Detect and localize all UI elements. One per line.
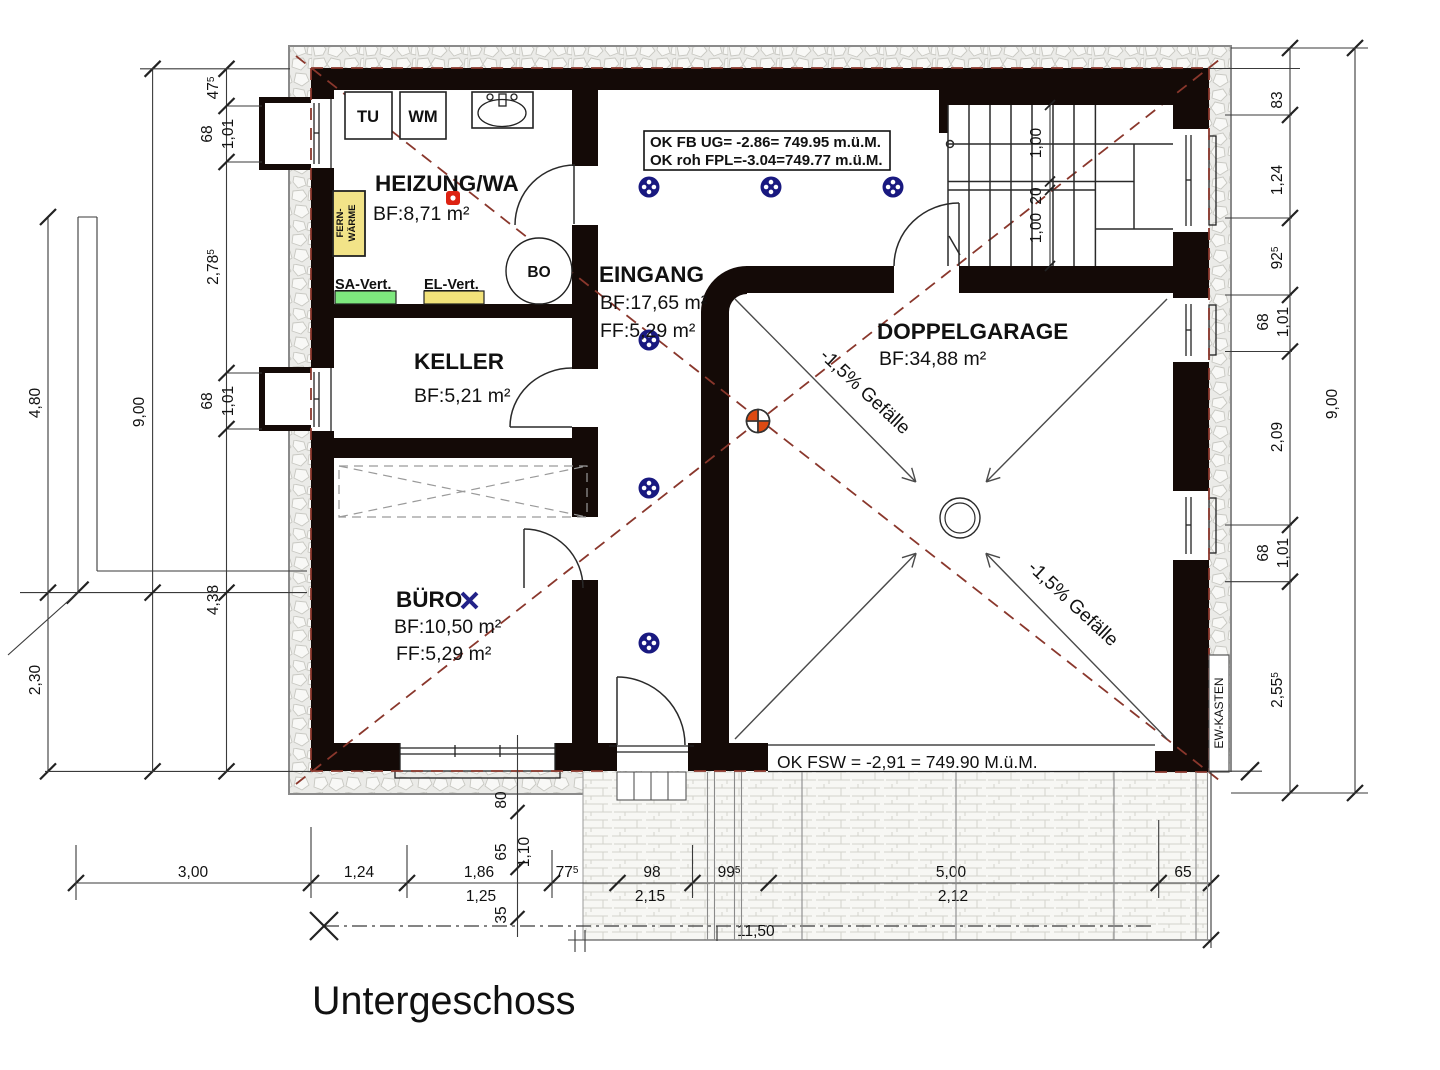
svg-text:1,00: 1,00 <box>1028 128 1045 159</box>
svg-text:1,25: 1,25 <box>466 888 496 905</box>
svg-text:BF:10,50 m²: BF:10,50 m² <box>394 616 502 638</box>
svg-text:1,01: 1,01 <box>1275 307 1292 337</box>
svg-text:FF:5,29 m²: FF:5,29 m² <box>396 643 492 665</box>
svg-text:2,30: 2,30 <box>27 665 44 696</box>
svg-text:5,00: 5,00 <box>936 864 967 881</box>
svg-text:BF:8,71 m²: BF:8,71 m² <box>373 203 470 225</box>
svg-text:35: 35 <box>493 906 510 923</box>
svg-text:68: 68 <box>199 125 216 142</box>
svg-text:68: 68 <box>199 392 216 409</box>
svg-text:9,00: 9,00 <box>1324 389 1341 420</box>
svg-text:EINGANG: EINGANG <box>599 262 704 287</box>
svg-text:OK FB UG= -2.86= 749.95 m.ü.: OK FB UG= -2.86= 749.95 m.ü.M. <box>650 134 881 151</box>
svg-text:WM: WM <box>408 108 437 126</box>
svg-text:BO: BO <box>527 264 550 281</box>
svg-text:1,24: 1,24 <box>344 864 375 881</box>
svg-text:65: 65 <box>493 843 510 860</box>
svg-text:98: 98 <box>643 864 660 881</box>
svg-text:KELLER: KELLER <box>414 349 504 374</box>
svg-text:20: 20 <box>1028 187 1045 205</box>
svg-text:1,01: 1,01 <box>220 119 237 149</box>
svg-text:80: 80 <box>493 791 510 809</box>
svg-text:WÄRME: WÄRME <box>347 205 358 242</box>
svg-text:65: 65 <box>1174 864 1191 881</box>
svg-text:2,12: 2,12 <box>938 888 968 905</box>
svg-text:3,00: 3,00 <box>178 864 209 881</box>
svg-text:BÜRO: BÜRO <box>396 587 462 612</box>
svg-text:83: 83 <box>1269 91 1286 108</box>
svg-text:EW-KASTEN: EW-KASTEN <box>1212 677 1226 748</box>
svg-text:1,24: 1,24 <box>1269 165 1286 196</box>
svg-text:DOPPELGARAGE: DOPPELGARAGE <box>877 319 1068 344</box>
svg-text:HEIZUNG/WA: HEIZUNG/WA <box>375 171 519 196</box>
svg-text:4,80: 4,80 <box>27 388 44 419</box>
svg-text:OK FSW = -2,91 = 749.90 M.ü.M.: OK FSW = -2,91 = 749.90 M.ü.M. <box>777 752 1038 772</box>
svg-text:2,15: 2,15 <box>635 888 665 905</box>
svg-text:68: 68 <box>1255 544 1272 561</box>
svg-text:TU: TU <box>357 108 379 126</box>
svg-text:68: 68 <box>1255 313 1272 330</box>
svg-text:2,09: 2,09 <box>1269 422 1286 452</box>
svg-text:BF:17,65 m²: BF:17,65 m² <box>600 292 708 314</box>
svg-text:1,10: 1,10 <box>516 837 533 868</box>
svg-text:11,50: 11,50 <box>737 923 775 940</box>
svg-text:9,00: 9,00 <box>131 397 148 428</box>
svg-text:FF:5,29 m²: FF:5,29 m² <box>600 320 696 342</box>
svg-text:Untergeschoss: Untergeschoss <box>312 979 575 1023</box>
svg-text:BF:34,88 m²: BF:34,88 m² <box>879 348 987 370</box>
svg-text:1,01: 1,01 <box>1275 538 1292 568</box>
svg-text:1,00: 1,00 <box>1028 213 1045 244</box>
svg-text:BF:5,21 m²: BF:5,21 m² <box>414 385 511 407</box>
svg-text:FERN-: FERN- <box>335 208 346 237</box>
svg-text:OK roh FPL=-3.04=749.77 m.ü.M.: OK roh FPL=-3.04=749.77 m.ü.M. <box>650 152 883 169</box>
svg-text:1,01: 1,01 <box>220 386 237 416</box>
svg-text:1,86: 1,86 <box>464 864 494 881</box>
